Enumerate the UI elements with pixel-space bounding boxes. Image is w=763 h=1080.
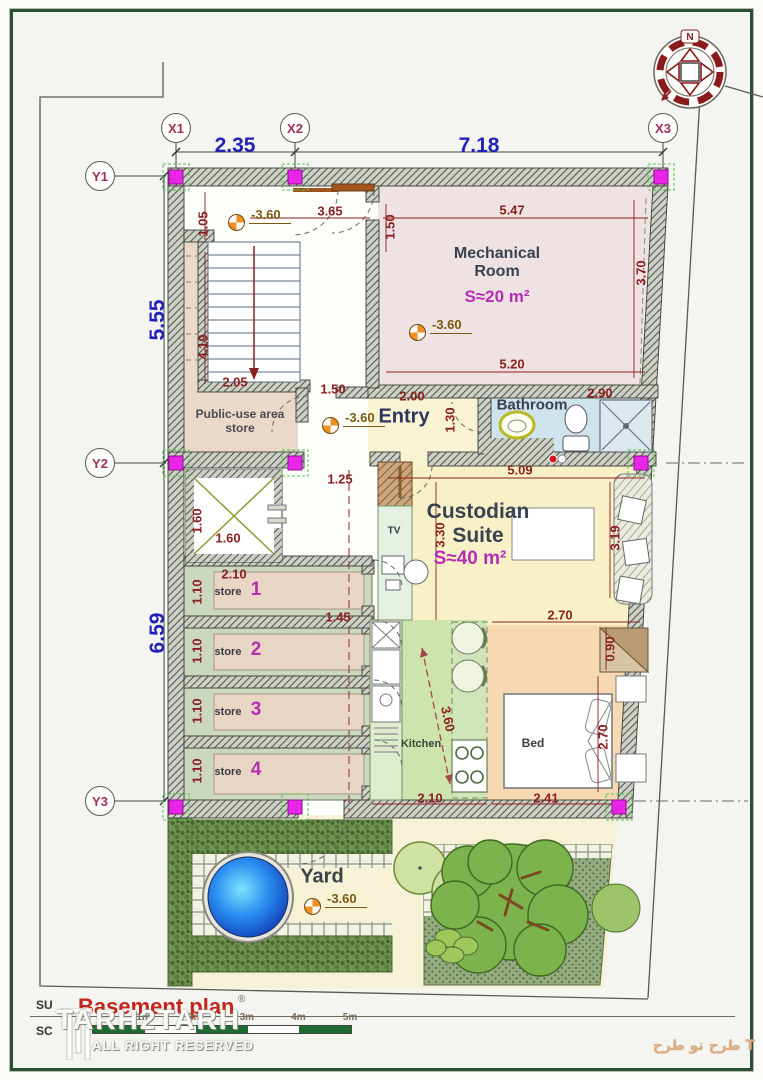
stair-upper-flight: [184, 242, 198, 388]
pool: [208, 857, 288, 937]
elevator: [186, 470, 286, 562]
kitchen-sink: [372, 686, 400, 722]
floor-plan-sheet: N X1X2X3Y1Y2Y32.357.185.556.591.053.655.…: [0, 0, 763, 1080]
stove: [452, 740, 487, 792]
chair: [404, 560, 428, 584]
public-store-floor: [184, 382, 298, 462]
north-compass: N: [654, 30, 726, 108]
fridge: [372, 650, 400, 684]
dining-table: [452, 622, 484, 654]
brand-watermark-farsi: طرح تو طرح T: [625, 1038, 755, 1054]
north-label: N: [686, 32, 693, 43]
toilet: [565, 405, 587, 433]
mechanical-room-floor: [378, 186, 653, 392]
yard: [168, 815, 640, 988]
nightstand: [616, 676, 646, 702]
basement-plan-drawing: N: [0, 0, 763, 1080]
closet: [378, 462, 412, 506]
sink: [500, 412, 534, 438]
table: [512, 508, 594, 560]
